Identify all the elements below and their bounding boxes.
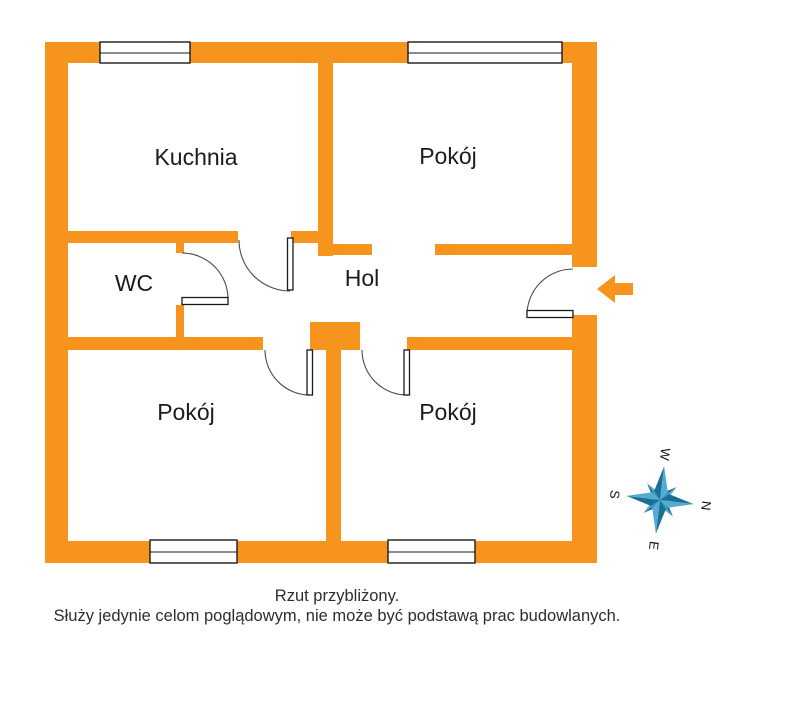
wall-divider-kitchen-room: [318, 60, 333, 256]
window-top-right: [408, 42, 562, 63]
window-bottom-right: [388, 540, 475, 563]
door-room-bottom-right: [362, 350, 410, 395]
wall-kitchen-bottom-right: [291, 231, 321, 243]
wall-wc-right-upper-stub: [176, 231, 184, 253]
label-room-top-right: Pokój: [419, 143, 477, 169]
compass-letter-w: W: [657, 447, 673, 462]
doors: [182, 238, 573, 395]
floor-plan: Kuchnia Pokój WC Hol Pokój Pokój: [0, 0, 796, 707]
disclaimer-line-1: Rzut przybliżony.: [275, 587, 399, 605]
compass-rose: N E S W: [601, 442, 720, 557]
wall-right-upper: [572, 42, 597, 267]
wall-hall-bottom-center-block: [310, 322, 360, 350]
wall-right-lower: [572, 315, 597, 563]
disclaimer-line-2: Służy jedynie celom poglądowym, nie może…: [54, 607, 621, 625]
label-room-bottom-right: Pokój: [419, 399, 477, 425]
entrance-arrow-icon: [597, 275, 633, 303]
wall-hall-top-right: [435, 244, 575, 255]
label-kitchen: Kuchnia: [154, 144, 237, 170]
wall-left: [45, 42, 68, 563]
wall-wc-right-lower-stub: [176, 305, 184, 339]
door-kitchen: [239, 238, 293, 291]
window-bottom-left: [150, 540, 237, 563]
label-wc: WC: [115, 270, 153, 296]
window-top-left: [100, 42, 190, 63]
wall-hall-bottom-left: [56, 337, 263, 350]
wall-hall-top-left: [330, 244, 372, 255]
compass-letter-e: E: [646, 540, 662, 551]
label-room-bottom-left: Pokój: [157, 399, 215, 425]
wall-kitchen-bottom-left: [56, 231, 238, 243]
room-labels: Kuchnia Pokój WC Hol Pokój Pokój: [115, 143, 477, 425]
wall-bottom: [45, 541, 597, 563]
label-hall: Hol: [345, 265, 380, 291]
interior-walls: [56, 60, 575, 545]
disclaimer: Rzut przybliżony. Służy jedynie celom po…: [54, 587, 621, 625]
door-wc: [182, 253, 228, 305]
wall-divider-bottom-rooms: [326, 350, 341, 545]
compass-letter-s: S: [607, 489, 623, 500]
wall-hall-bottom-right: [407, 337, 575, 350]
compass-letter-n: N: [698, 500, 714, 511]
door-room-bottom-left: [265, 350, 313, 395]
door-entrance: [527, 269, 573, 318]
